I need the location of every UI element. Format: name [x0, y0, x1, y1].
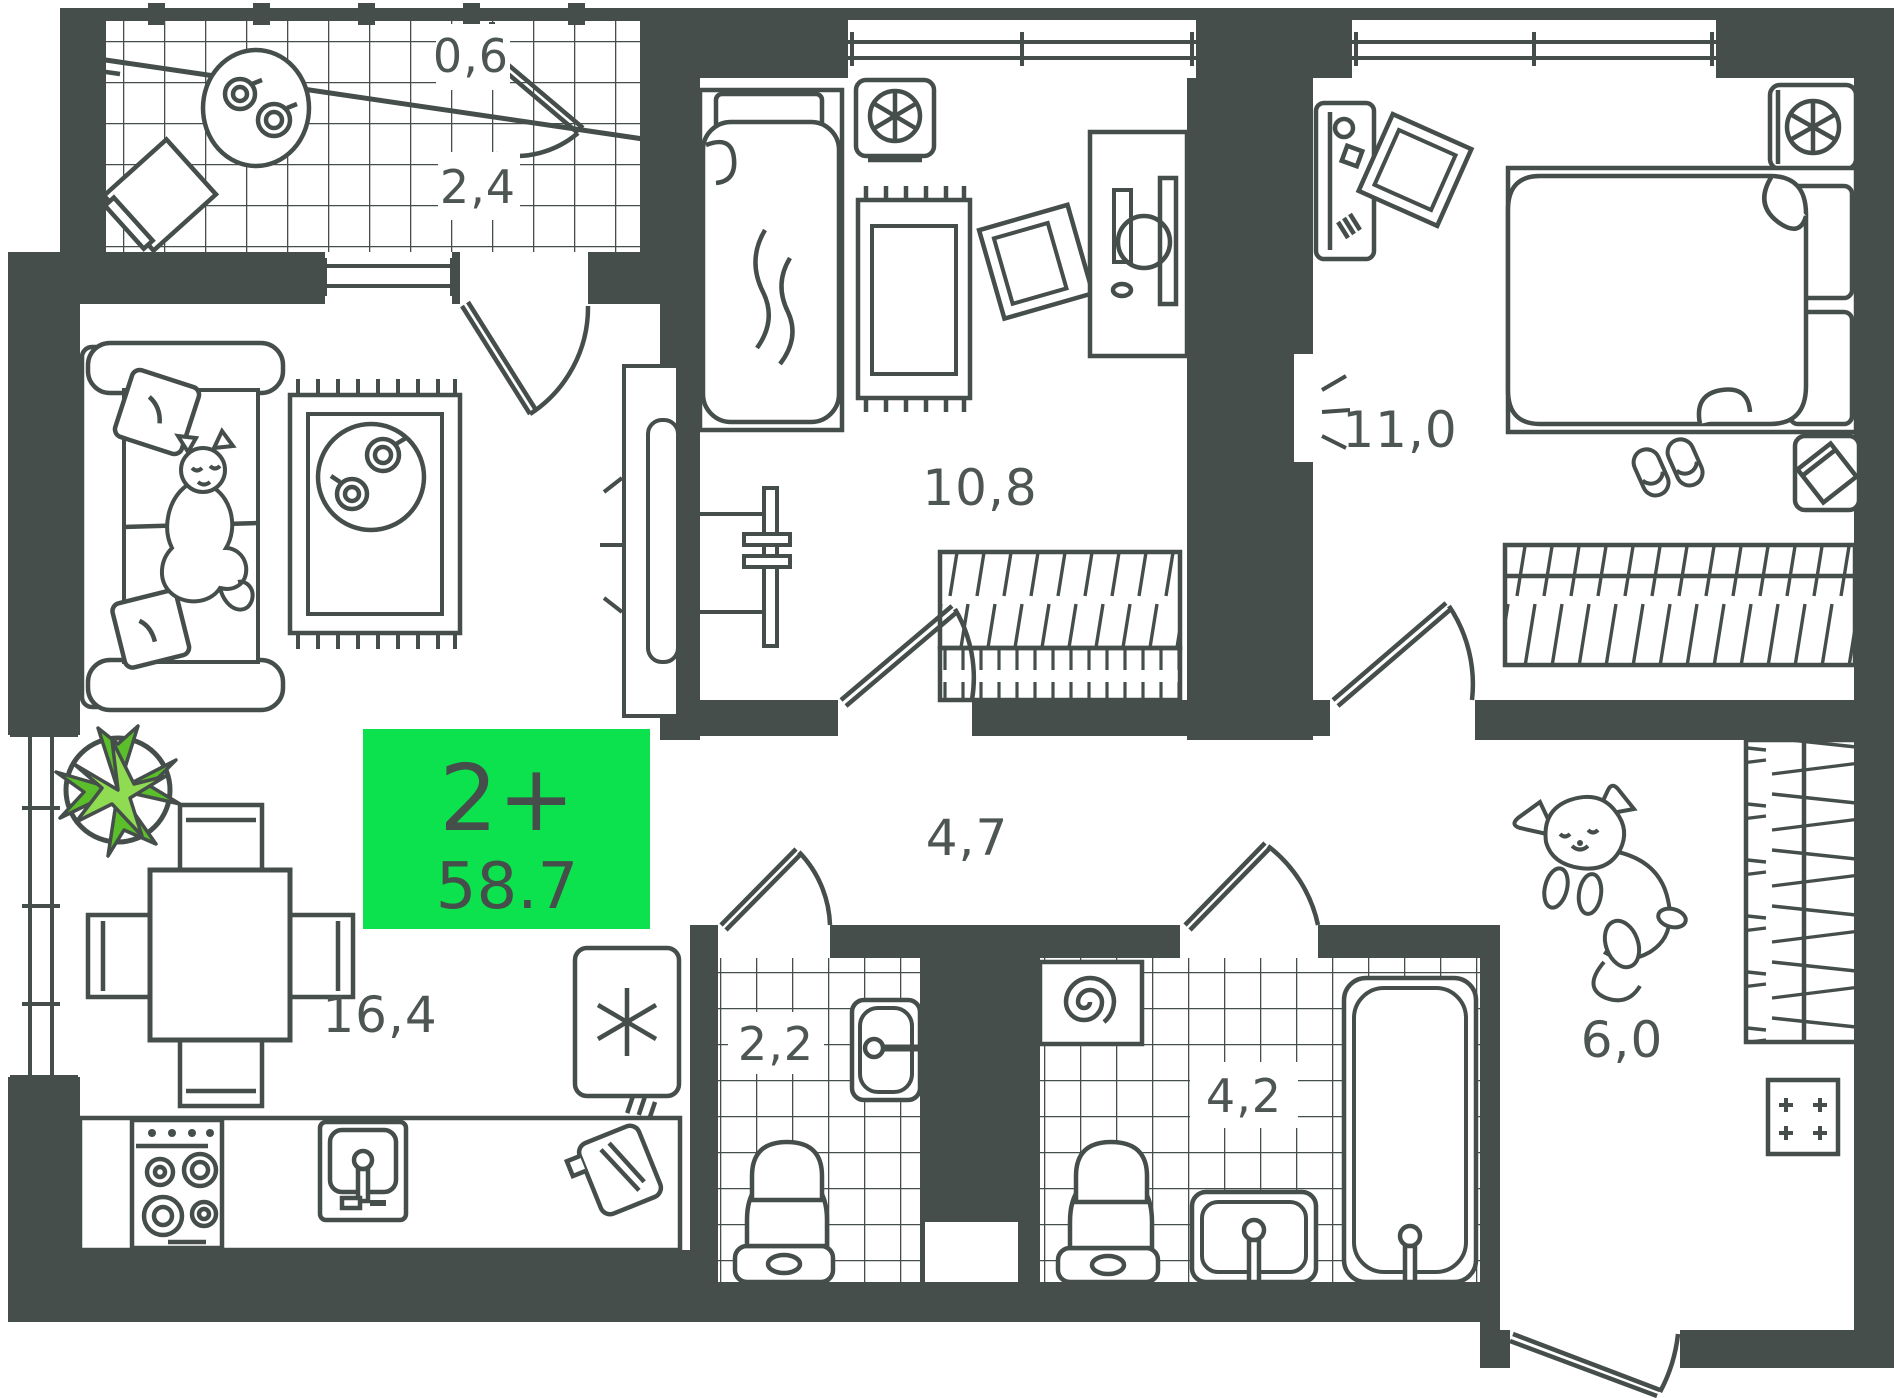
ac-unit-bedroom2	[1770, 85, 1856, 169]
living-area-label: 16,4	[322, 986, 437, 1044]
plan-badge[interactable]: 2+ 58.7	[363, 729, 650, 929]
bedroom2-area-label: 11,0	[1342, 401, 1457, 459]
sink-bath	[1192, 1192, 1316, 1282]
wardrobe-bedroom2	[1505, 545, 1855, 665]
bed-double	[1508, 168, 1856, 432]
drying-rack	[1746, 740, 1860, 1042]
loggia-right-area-label: 6,0	[1581, 1011, 1664, 1069]
svg-text:2,2: 2,2	[738, 1017, 814, 1071]
sink-wc	[852, 1000, 920, 1100]
coffee-table-rug	[290, 379, 460, 649]
rug-bedroom1	[858, 186, 970, 412]
fridge	[575, 948, 679, 1096]
stove	[132, 1120, 222, 1248]
svg-text:0,6: 0,6	[433, 29, 509, 83]
hall-area-label: 4,7	[926, 809, 1009, 867]
wc-area-label: 2,2	[728, 1012, 824, 1074]
kitchen-sink	[320, 1122, 406, 1220]
loggia-top-area-label: 2,4	[438, 152, 520, 220]
washing-machine	[1040, 962, 1142, 1044]
floor-plan: 0,6 2,4	[0, 0, 1900, 1398]
bathroom-area-label: 4,2	[1190, 1062, 1298, 1128]
bathtub	[1344, 978, 1476, 1282]
badge-rooms-type: 2+	[439, 745, 575, 852]
bed-single	[700, 90, 842, 430]
nightstand-book	[1795, 436, 1859, 510]
ac-unit-bedroom1	[856, 80, 934, 160]
storage-area-label: 0,6	[433, 24, 510, 90]
svg-text:4,2: 4,2	[1206, 1069, 1282, 1123]
badge-total-area: 58.7	[436, 850, 579, 924]
desk-bedroom1	[1090, 132, 1187, 356]
floor-drain	[1768, 1080, 1838, 1154]
bedroom1-area-label: 10,8	[922, 459, 1037, 517]
svg-text:2,4: 2,4	[440, 160, 516, 214]
